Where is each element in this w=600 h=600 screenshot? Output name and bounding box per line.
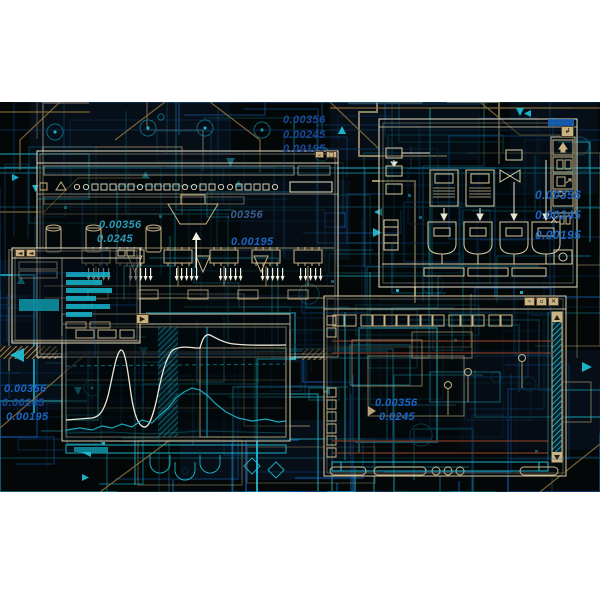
- back-button[interactable]: ◄: [15, 249, 25, 257]
- maximize-button[interactable]: ▫: [536, 297, 547, 306]
- window-flowchart[interactable]: [379, 119, 577, 287]
- circuit-art: [0, 102, 600, 492]
- back-button[interactable]: ◄: [26, 249, 36, 257]
- illustration-page: 0.00356 0.00245 0.00195 0.00356 0.00245 …: [0, 0, 600, 600]
- window-list[interactable]: [12, 248, 140, 343]
- list-item[interactable]: [66, 296, 96, 301]
- selected-row[interactable]: [19, 299, 59, 311]
- scroll-thumb[interactable]: [74, 447, 108, 452]
- list-item[interactable]: [66, 312, 92, 317]
- play-button[interactable]: ▶: [136, 314, 149, 324]
- list-item[interactable]: [66, 288, 112, 293]
- restore-button[interactable]: ❐: [326, 151, 337, 158]
- close-button[interactable]: ✕: [548, 297, 559, 306]
- circuit-stage: 0.00356 0.00245 0.00195 0.00356 0.00245 …: [0, 102, 600, 492]
- titlebar-accent: [548, 119, 574, 126]
- vertical-scrollbar[interactable]: [552, 312, 562, 462]
- minimize-button[interactable]: –: [315, 151, 324, 158]
- list-item[interactable]: [66, 280, 102, 285]
- window-diagram[interactable]: [324, 296, 566, 476]
- minimize-button[interactable]: –: [524, 297, 535, 306]
- return-icon[interactable]: ↲: [561, 126, 574, 137]
